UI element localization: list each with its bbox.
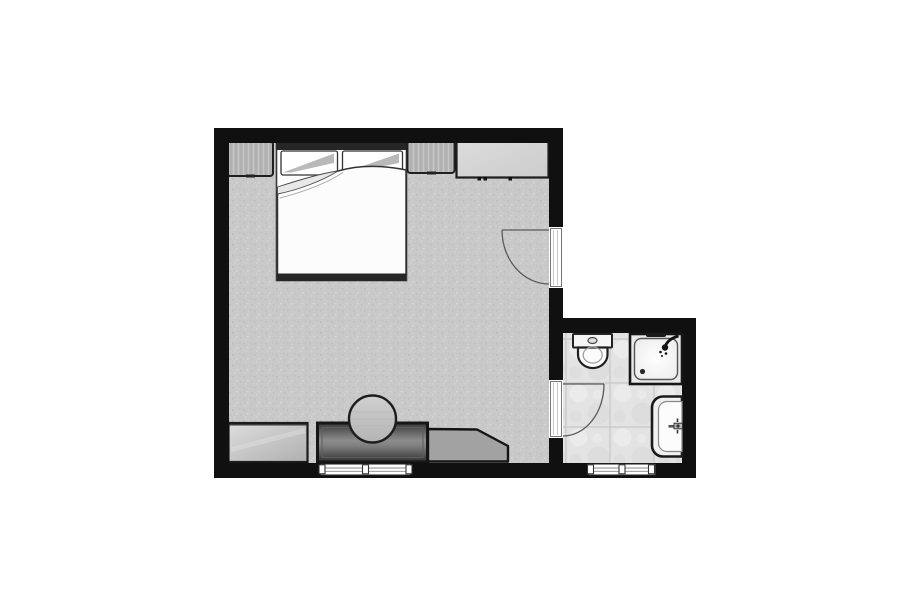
flush-button: [588, 338, 597, 344]
stool: [349, 396, 396, 443]
door-leaf: [551, 382, 562, 437]
bathroom-window: [588, 464, 656, 474]
door-leaf: [551, 229, 562, 287]
wall-left: [214, 128, 229, 478]
bedroom-window: [319, 464, 412, 474]
wall-top: [214, 128, 563, 143]
toilet-bowl: [578, 348, 608, 369]
dresser: [229, 423, 308, 462]
cabinet-handle: [509, 177, 513, 181]
footboard: [277, 274, 406, 282]
cabinet-handle: [478, 177, 482, 181]
window-post: [363, 465, 369, 474]
wall-top-bathroom: [563, 318, 696, 333]
window-post: [406, 465, 412, 474]
shower-bar: [646, 333, 666, 338]
headboard: [276, 142, 407, 150]
window-post: [619, 465, 625, 474]
wall-cabinet: [457, 141, 549, 181]
shower-head: [662, 344, 668, 350]
floor-plan-canvas: [0, 0, 913, 608]
window-post: [588, 465, 594, 474]
nightstand-right: [408, 140, 455, 175]
double-bed: [276, 142, 407, 281]
sink: [652, 397, 683, 457]
wall-right-bathroom: [682, 318, 696, 478]
shower: [630, 333, 682, 385]
window-post: [319, 465, 325, 474]
pillow-left: [281, 151, 338, 175]
window-post: [649, 465, 655, 474]
nightstand-left: [227, 142, 273, 178]
duvet: [278, 166, 407, 276]
shower-drain: [640, 369, 645, 374]
cabinet-handle: [484, 177, 488, 181]
floor-plan-drawing: [0, 0, 913, 608]
